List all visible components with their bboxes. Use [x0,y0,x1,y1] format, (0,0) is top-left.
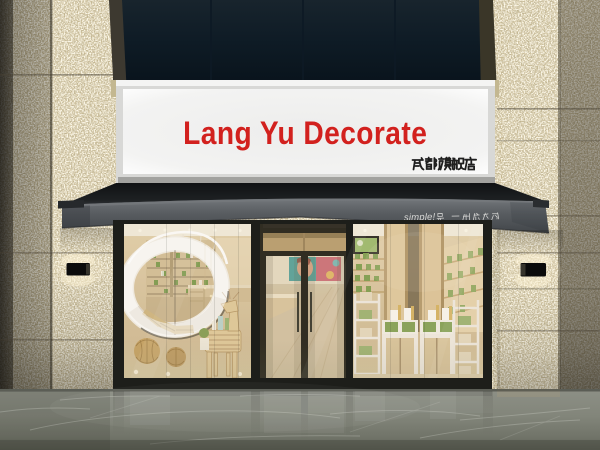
svg-text:Lang Yu Decorate: Lang Yu Decorate [183,116,427,151]
